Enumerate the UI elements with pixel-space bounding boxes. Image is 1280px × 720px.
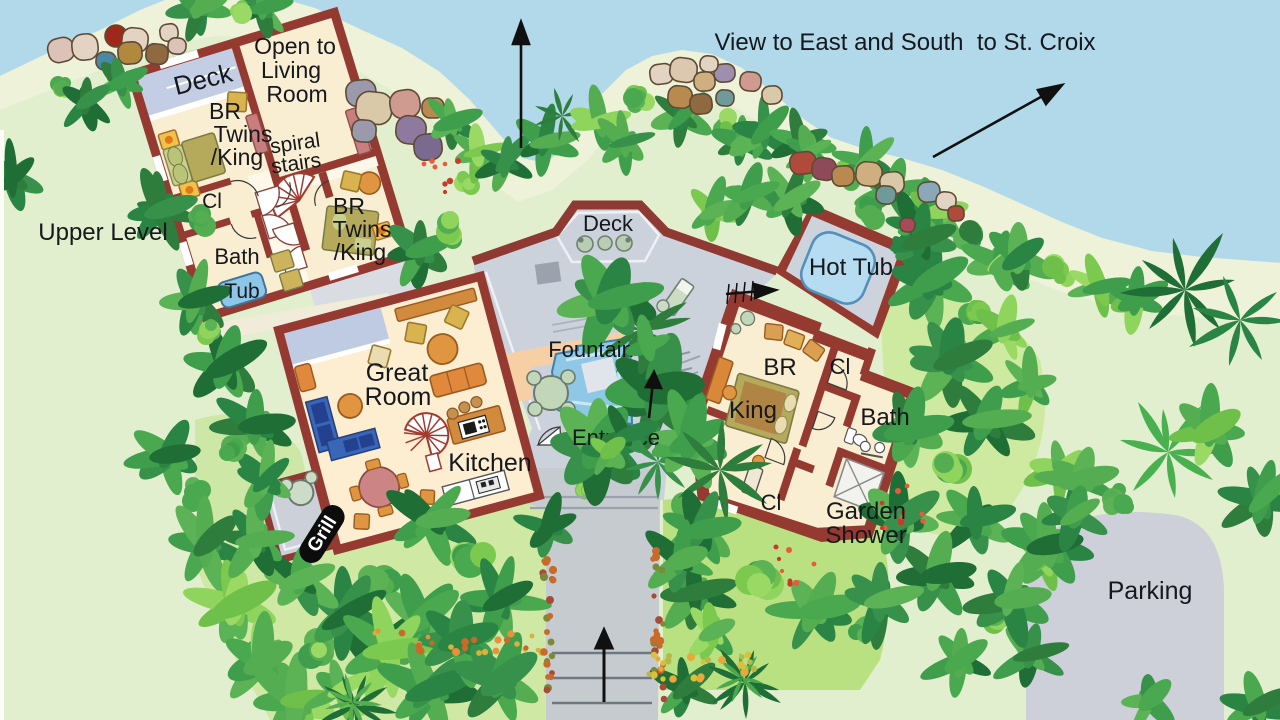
svg-text:Cl: Cl	[202, 190, 222, 213]
svg-text:Deck: Deck	[583, 211, 634, 236]
svg-text:Fountain: Fountain	[548, 337, 634, 362]
svg-text:Open to: Open to	[254, 33, 336, 59]
svg-text:Room: Room	[365, 383, 432, 411]
svg-text:Living: Living	[261, 57, 321, 83]
svg-text:Bath: Bath	[214, 244, 259, 269]
svg-text:Bath: Bath	[860, 404, 909, 431]
svg-text:Cl: Cl	[830, 354, 851, 379]
svg-text:BR: BR	[763, 354, 796, 381]
svg-text:Hot Tub: Hot Tub	[809, 254, 893, 281]
svg-text:Cl: Cl	[761, 490, 782, 515]
svg-text:/King: /King	[334, 239, 386, 265]
svg-text:/King: /King	[211, 144, 263, 170]
svg-text:Shower: Shower	[825, 522, 906, 549]
svg-text:King: King	[729, 397, 777, 424]
svg-text:Upper Level: Upper Level	[38, 219, 167, 246]
svg-text:Tub: Tub	[224, 280, 259, 303]
svg-text:Parking: Parking	[1108, 577, 1193, 605]
svg-text:View to East and South to St.: View to East and South to St. Croix	[714, 29, 1095, 56]
svg-text:Kitchen: Kitchen	[448, 449, 531, 477]
svg-text:Room: Room	[266, 81, 327, 107]
svg-text:Garden: Garden	[826, 498, 906, 525]
